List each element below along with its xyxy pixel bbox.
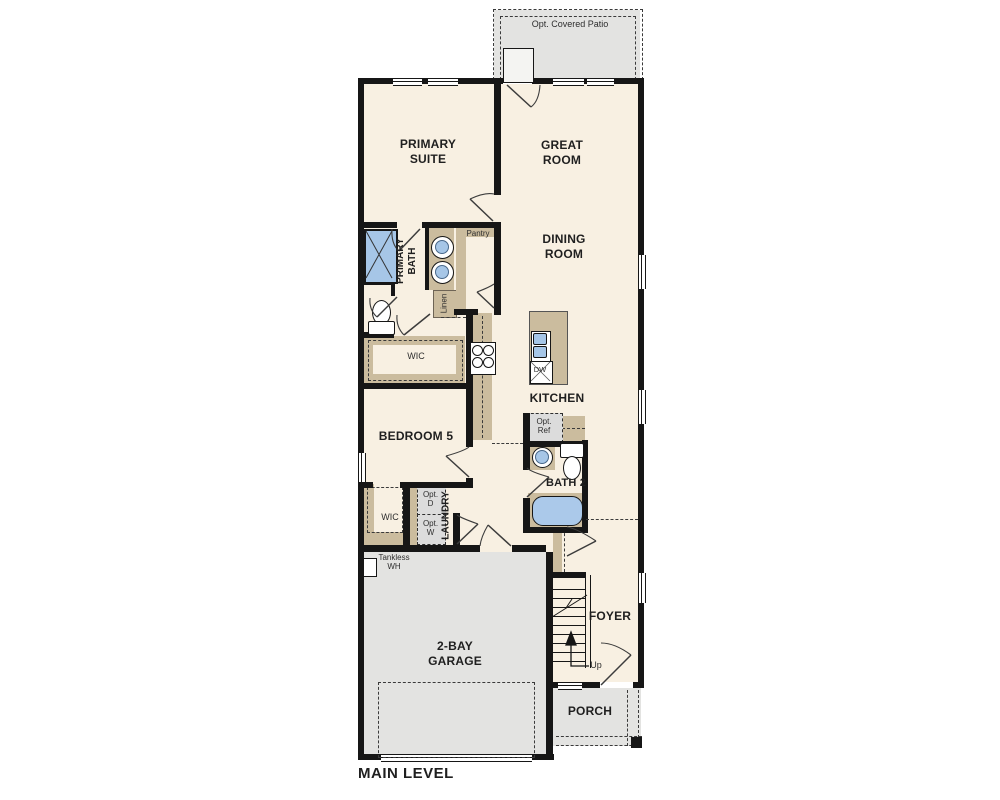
porch-post [631, 737, 642, 748]
up-label: Up [586, 660, 606, 670]
floor-plan: Opt. Covered Patio PRIMARY SUITE GREAT R… [0, 0, 1000, 800]
wall [453, 513, 460, 552]
stair-treads [553, 589, 585, 665]
kitchen-counter-dash [482, 316, 483, 438]
wall [425, 228, 429, 290]
opening-dash [492, 443, 523, 444]
window [553, 78, 584, 86]
wall [546, 572, 586, 578]
porch-dash [556, 745, 642, 746]
coat-closet-dash [564, 528, 565, 572]
island-sink-basin [533, 333, 547, 345]
wall [358, 482, 364, 760]
opening-dash [586, 519, 638, 520]
toilet-tank [368, 321, 395, 335]
window [587, 78, 614, 86]
kitchen-label: KITCHEN [514, 391, 600, 406]
fridge-cabinet [562, 416, 585, 442]
bath2-tub [532, 496, 583, 526]
wall [638, 78, 644, 255]
shower [364, 229, 398, 284]
window [358, 453, 366, 482]
linen-label: Linen [440, 289, 451, 319]
pantry-shelf-left [456, 228, 466, 315]
wic-b5-label: WIC [372, 512, 408, 522]
window [428, 78, 458, 86]
wic-primary-label: WIC [396, 351, 436, 361]
wall [358, 383, 466, 389]
wall [523, 413, 530, 470]
burner [483, 357, 494, 368]
patio-door-panel [503, 48, 534, 83]
fridge-cabinet-dash [562, 428, 585, 429]
wall [582, 682, 600, 688]
primary-suite-label: PRIMARY SUITE [393, 137, 463, 166]
wall [546, 552, 553, 754]
wall [546, 682, 558, 688]
vanity-sink-basin [435, 240, 449, 254]
vanity-sink-basin [435, 265, 449, 279]
bath2-label: BATH 2 [536, 477, 596, 490]
window [393, 78, 422, 86]
window [558, 682, 582, 690]
garage-label: 2-BAY GARAGE [422, 639, 488, 668]
wall [638, 424, 644, 573]
foyer-label: FOYER [586, 609, 634, 624]
wall [523, 527, 588, 533]
wall [633, 682, 644, 688]
porch-dash [556, 736, 642, 737]
primary-bath-label: PRIMARY BATH [395, 232, 421, 290]
wall [358, 545, 480, 552]
wall [638, 603, 644, 682]
great-room-label: GREAT ROOM [535, 138, 589, 167]
wall [466, 478, 473, 488]
porch-dash [627, 690, 628, 746]
garage-door-dash [378, 682, 535, 758]
window [638, 573, 646, 603]
opt-ref-label: Opt. Ref [531, 417, 557, 435]
wall [358, 482, 373, 488]
dining-room-label: DINING ROOM [532, 232, 596, 261]
wall [523, 498, 530, 527]
burner [472, 345, 483, 356]
porch-label: PORCH [562, 704, 618, 719]
burner [483, 345, 494, 356]
tankless-water-heater [363, 558, 377, 577]
laundry-label: LAUNDRY [441, 486, 454, 546]
window [638, 255, 646, 289]
tankless-wh-label: Tankless WH [376, 553, 412, 571]
plan-title: MAIN LEVEL [358, 765, 498, 783]
patio-label: Opt. Covered Patio [520, 19, 620, 29]
wic-b5-dash [367, 487, 403, 533]
wall [466, 313, 473, 447]
island-sink-basin [533, 346, 547, 358]
wall [512, 545, 546, 552]
burner [472, 357, 483, 368]
wall [638, 289, 644, 390]
bedroom5-label: BEDROOM 5 [366, 429, 466, 444]
wall [422, 222, 500, 228]
opt-d-label: Opt. D [420, 490, 441, 508]
wall [364, 222, 397, 228]
window [638, 390, 646, 424]
dw-label: DW [529, 366, 551, 375]
bath2-sink-basin [535, 450, 549, 464]
wall [494, 84, 501, 195]
opt-w-label: Opt. W [420, 519, 441, 537]
pantry-label: Pantry [458, 229, 498, 238]
wic-b5-shelf-bottom [364, 532, 406, 545]
wall [532, 78, 553, 84]
